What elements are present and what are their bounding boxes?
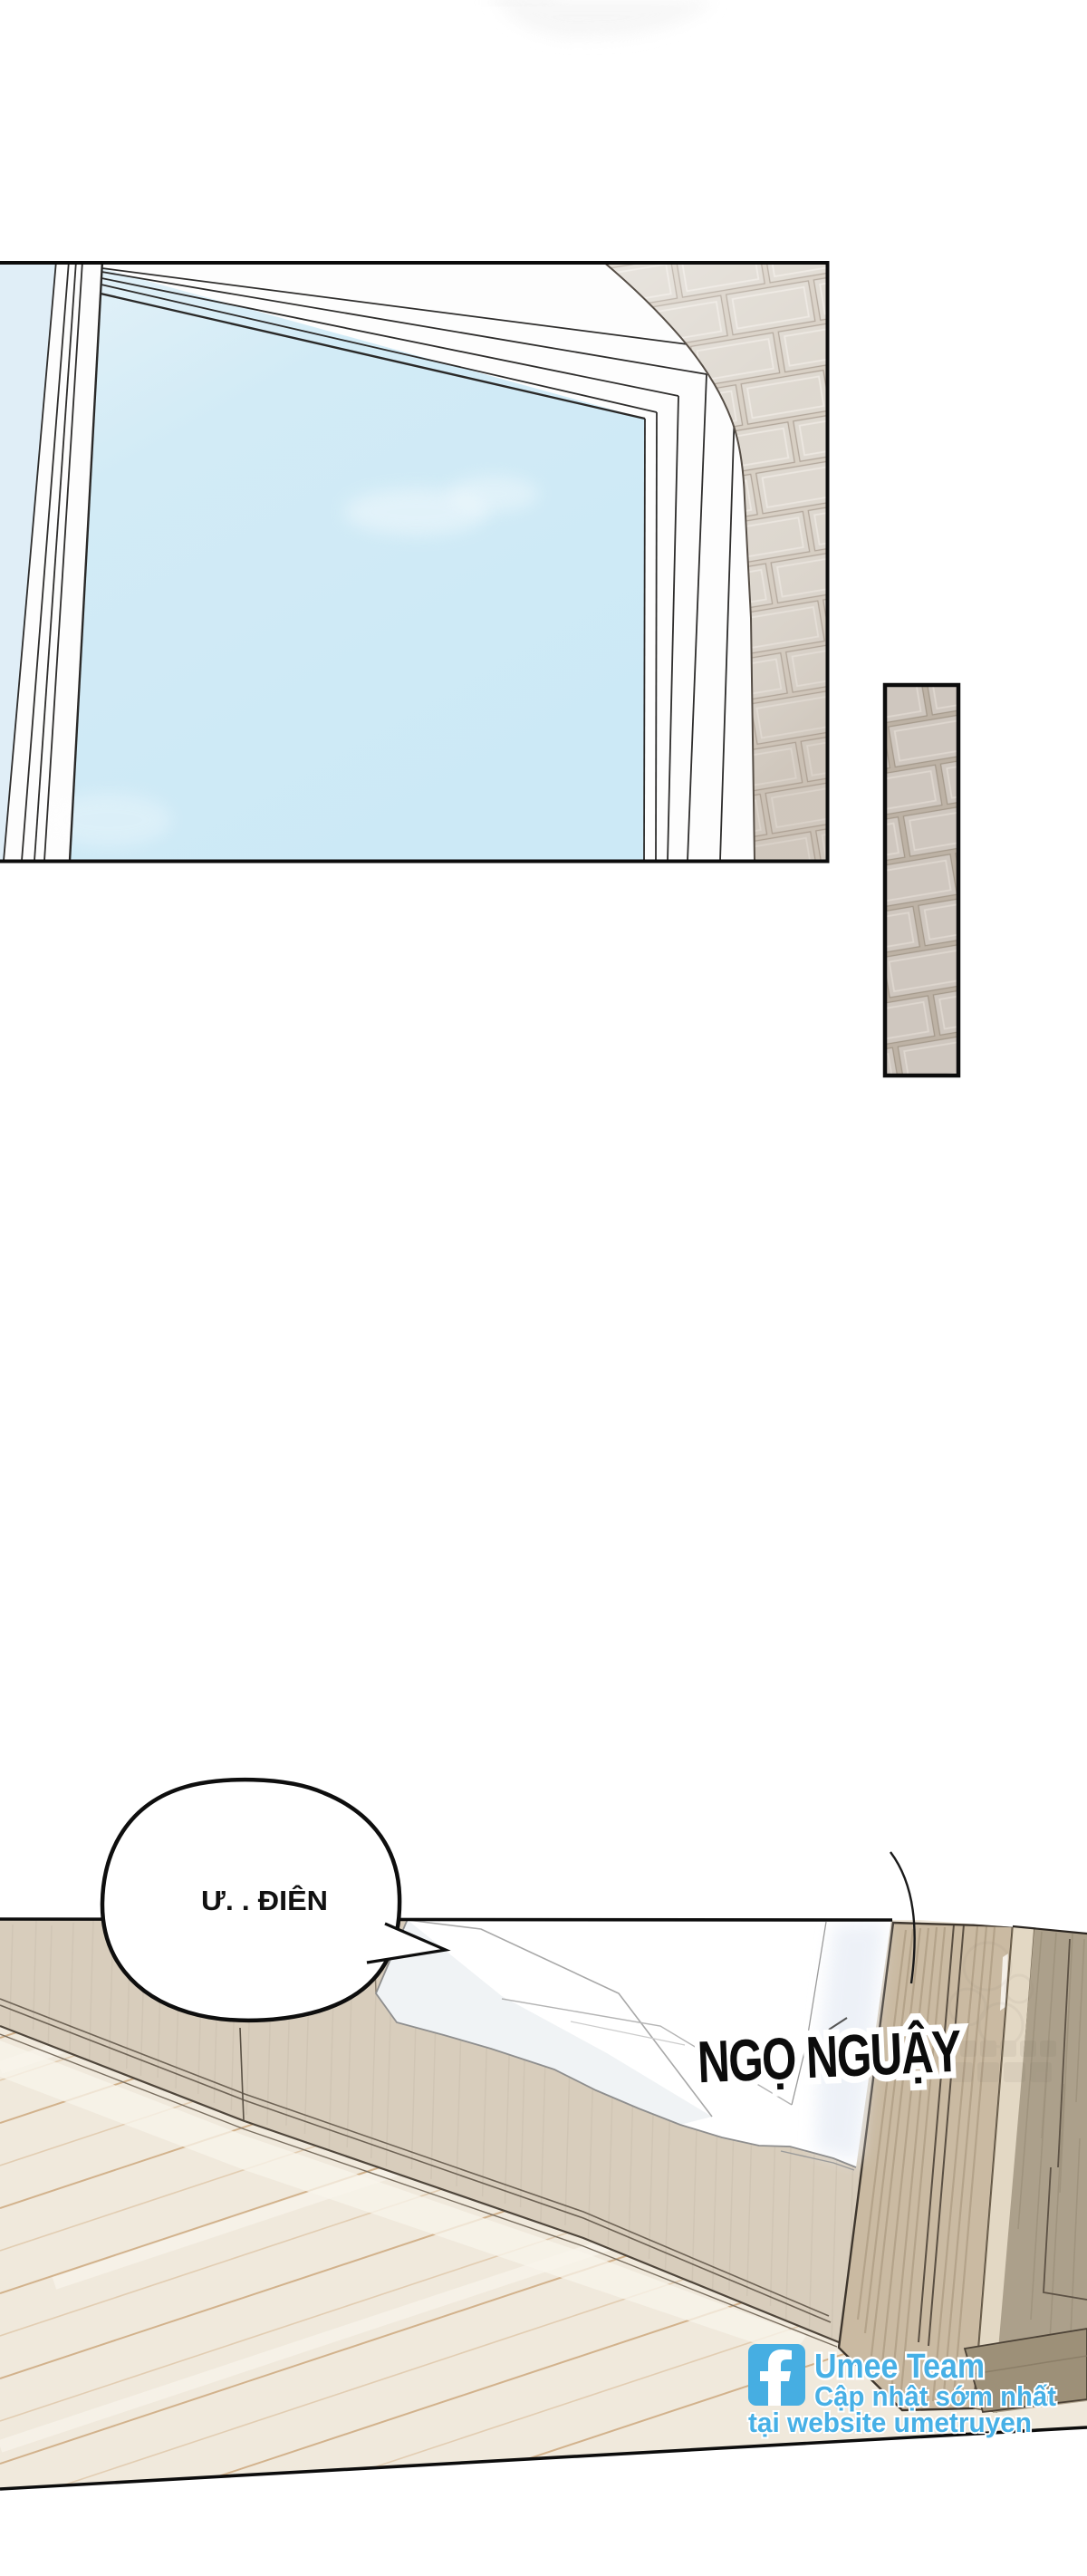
svg-text:Ư. . ĐIÊN: Ư. . ĐIÊN [201,1884,328,1916]
svg-text:tại website umetruyen: tại website umetruyen [748,2407,1032,2438]
svg-text:NGỌ NGUẬY: NGỌ NGUẬY [697,2018,963,2096]
